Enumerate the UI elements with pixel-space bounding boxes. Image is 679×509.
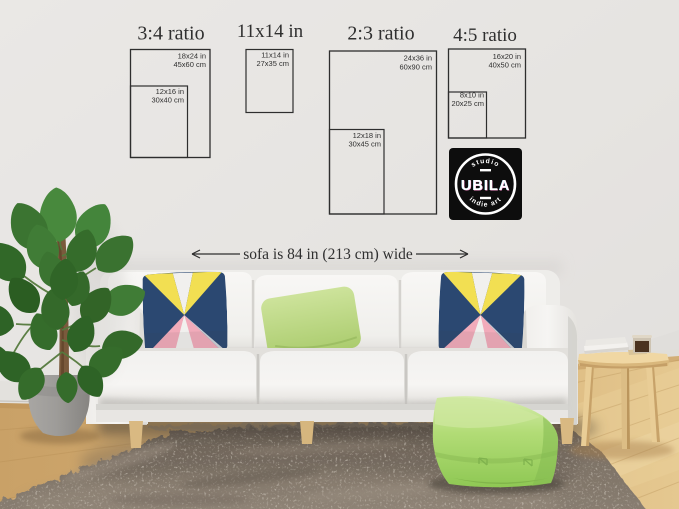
svg-text:27x35 cm: 27x35 cm <box>256 59 289 68</box>
svg-text:3:4 ratio: 3:4 ratio <box>137 23 204 45</box>
svg-text:sofa is 84 in (213 cm) wide: sofa is 84 in (213 cm) wide <box>243 246 413 263</box>
svg-text:30x45 cm: 30x45 cm <box>348 140 381 149</box>
svg-text:4:5 ratio: 4:5 ratio <box>453 25 517 46</box>
svg-text:24x36 in: 24x36 in <box>404 54 432 63</box>
svg-text:20x25 cm: 20x25 cm <box>451 99 484 108</box>
svg-text:11x14 in: 11x14 in <box>237 21 304 42</box>
svg-text:40x50 cm: 40x50 cm <box>488 61 521 70</box>
svg-text:60x90 cm: 60x90 cm <box>399 63 432 72</box>
svg-text:UBILA: UBILA <box>461 178 510 194</box>
svg-text:45x60 cm: 45x60 cm <box>173 60 206 69</box>
svg-text:30x40 cm: 30x40 cm <box>151 96 184 105</box>
svg-text:2:3 ratio: 2:3 ratio <box>347 23 414 45</box>
